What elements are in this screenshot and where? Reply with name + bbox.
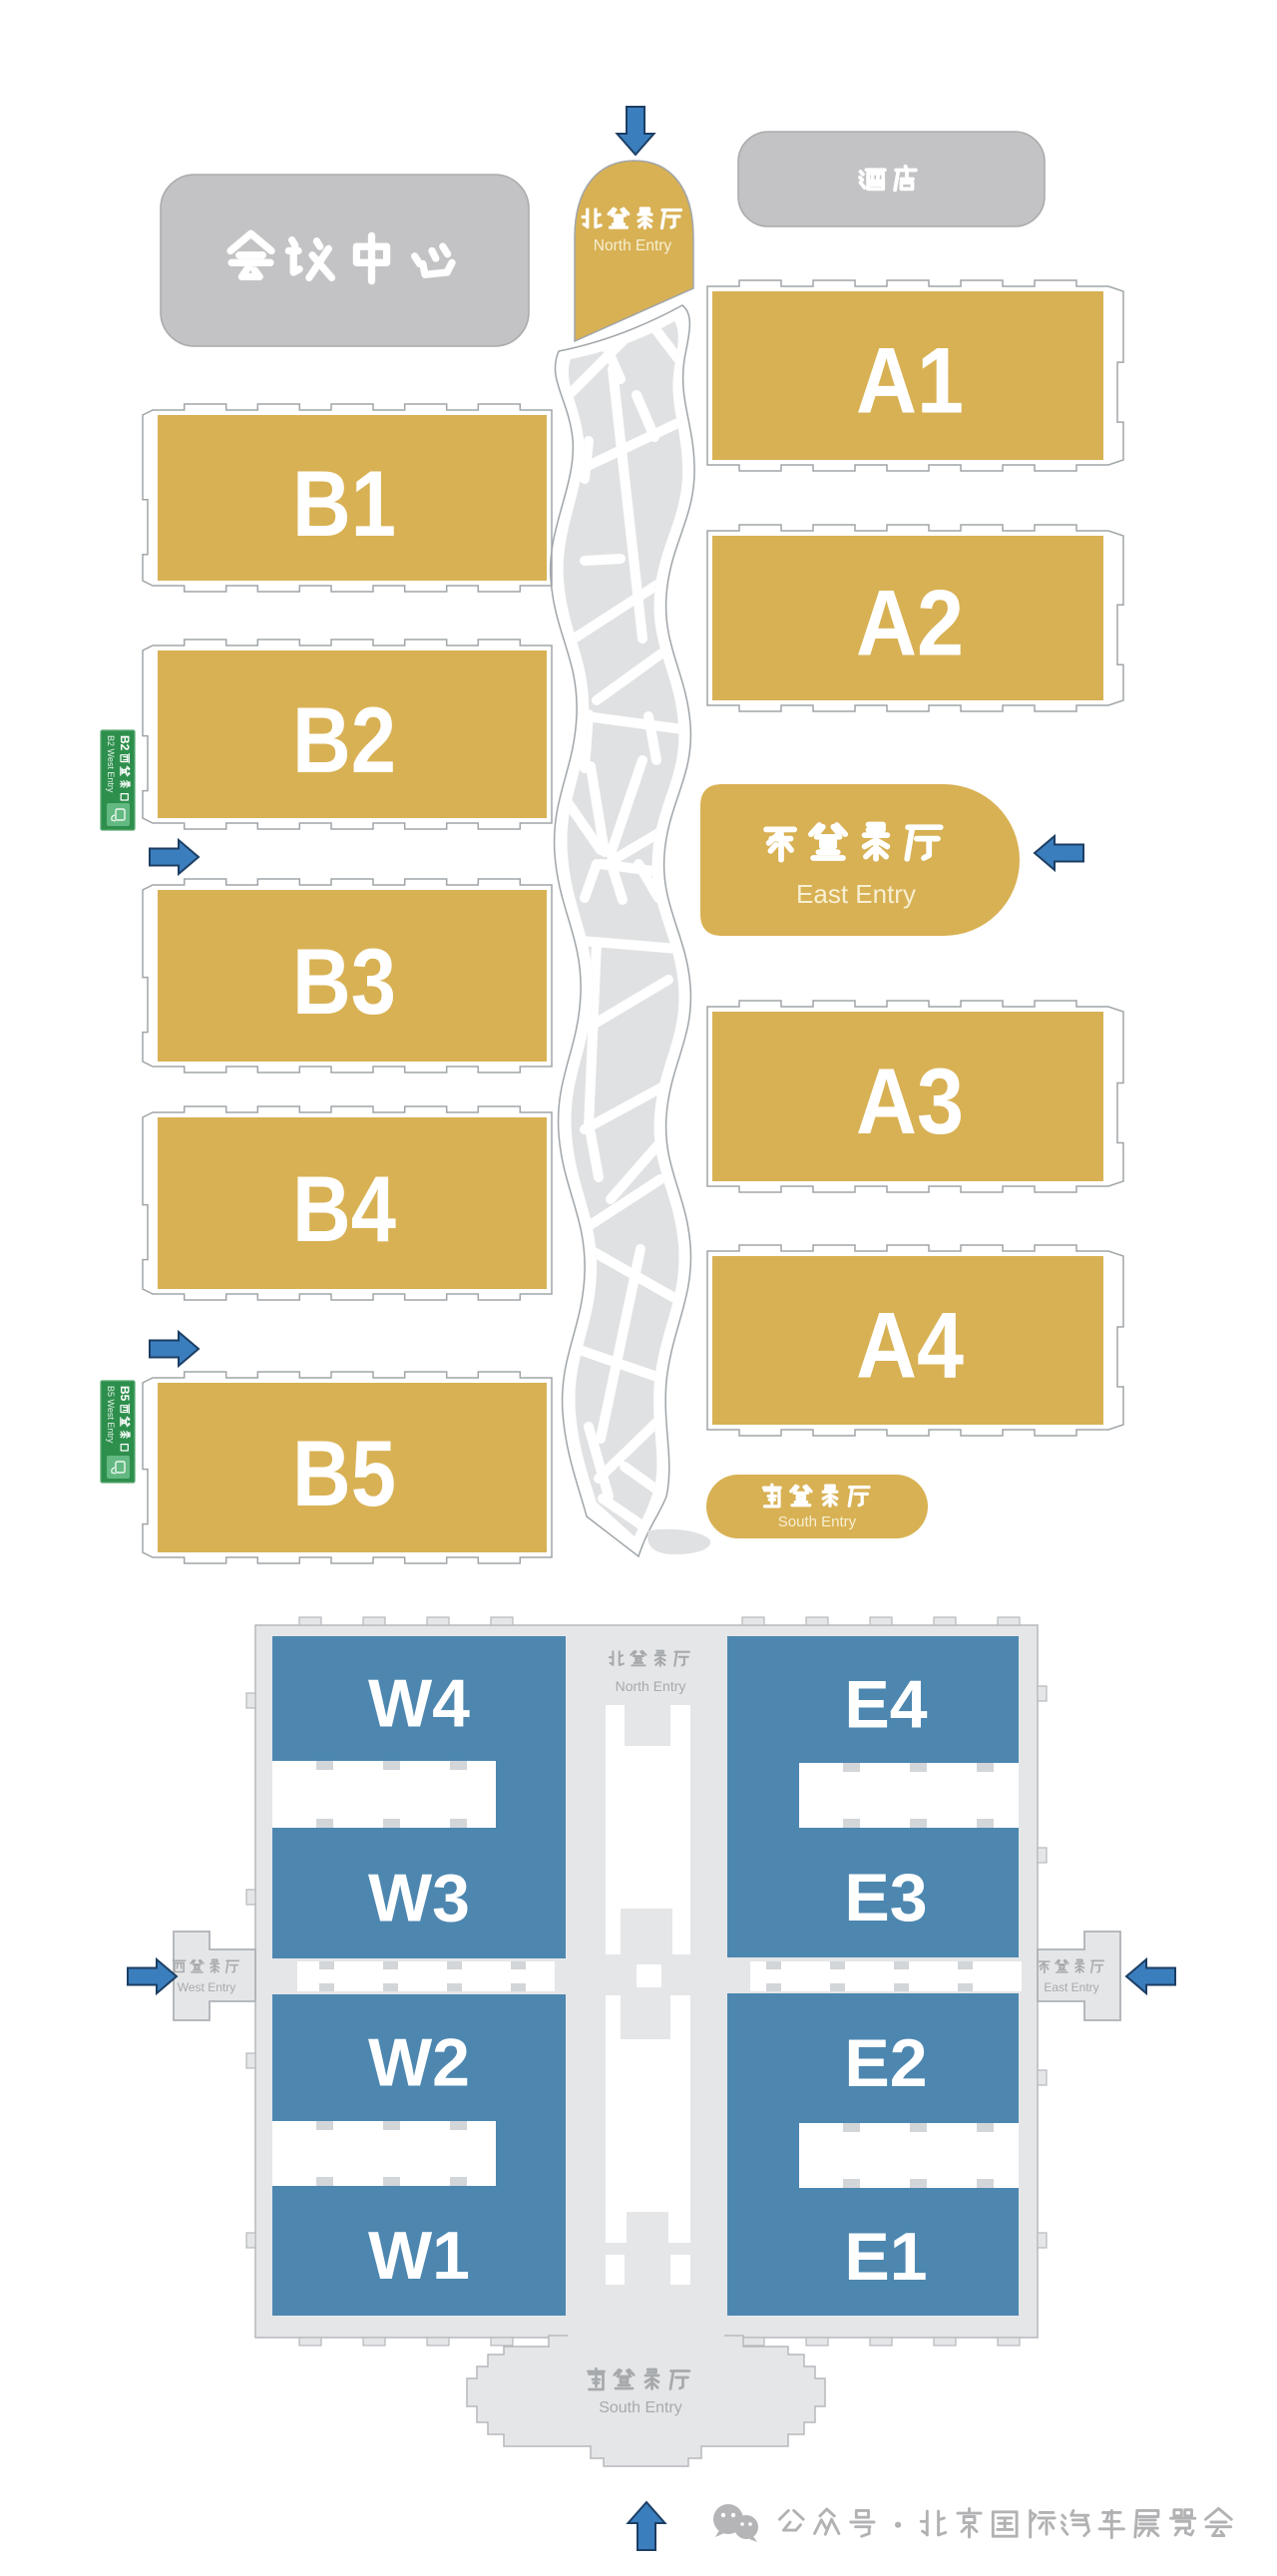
svg-text:B5 West Entry: B5 West Entry [106, 1386, 116, 1444]
svg-text:B2: B2 [292, 687, 396, 792]
svg-text:West Entry: West Entry [178, 1980, 235, 1994]
svg-text:B5: B5 [292, 1421, 396, 1525]
svg-text:A2: A2 [856, 571, 964, 675]
svg-text:W2: W2 [368, 2025, 470, 2101]
svg-text:B2 West Entry: B2 West Entry [106, 735, 116, 793]
svg-text:E3: E3 [844, 1860, 927, 1935]
svg-text:North Entry: North Entry [594, 237, 672, 254]
svg-text:E2: E2 [844, 2025, 927, 2101]
svg-text:B5: B5 [118, 1386, 132, 1402]
svg-text:North Entry: North Entry [616, 1678, 686, 1694]
svg-text:W1: W1 [368, 2218, 470, 2294]
svg-text:East Entry: East Entry [796, 879, 916, 909]
svg-text:A4: A4 [856, 1293, 964, 1398]
svg-text:B3: B3 [292, 929, 396, 1034]
svg-text:East Entry: East Entry [1044, 1980, 1098, 1994]
svg-text:B4: B4 [292, 1156, 396, 1261]
svg-text:A3: A3 [856, 1049, 964, 1153]
svg-text:W4: W4 [368, 1666, 470, 1742]
svg-text:E1: E1 [844, 2219, 927, 2295]
svg-text:E4: E4 [844, 1667, 927, 1743]
svg-text:A1: A1 [856, 328, 964, 433]
svg-text:South Entry: South Entry [599, 2399, 682, 2416]
svg-text:B2: B2 [118, 735, 132, 751]
svg-text:South Entry: South Entry [778, 1513, 857, 1530]
svg-text:B1: B1 [292, 451, 396, 556]
svg-text:W3: W3 [368, 1861, 470, 1936]
